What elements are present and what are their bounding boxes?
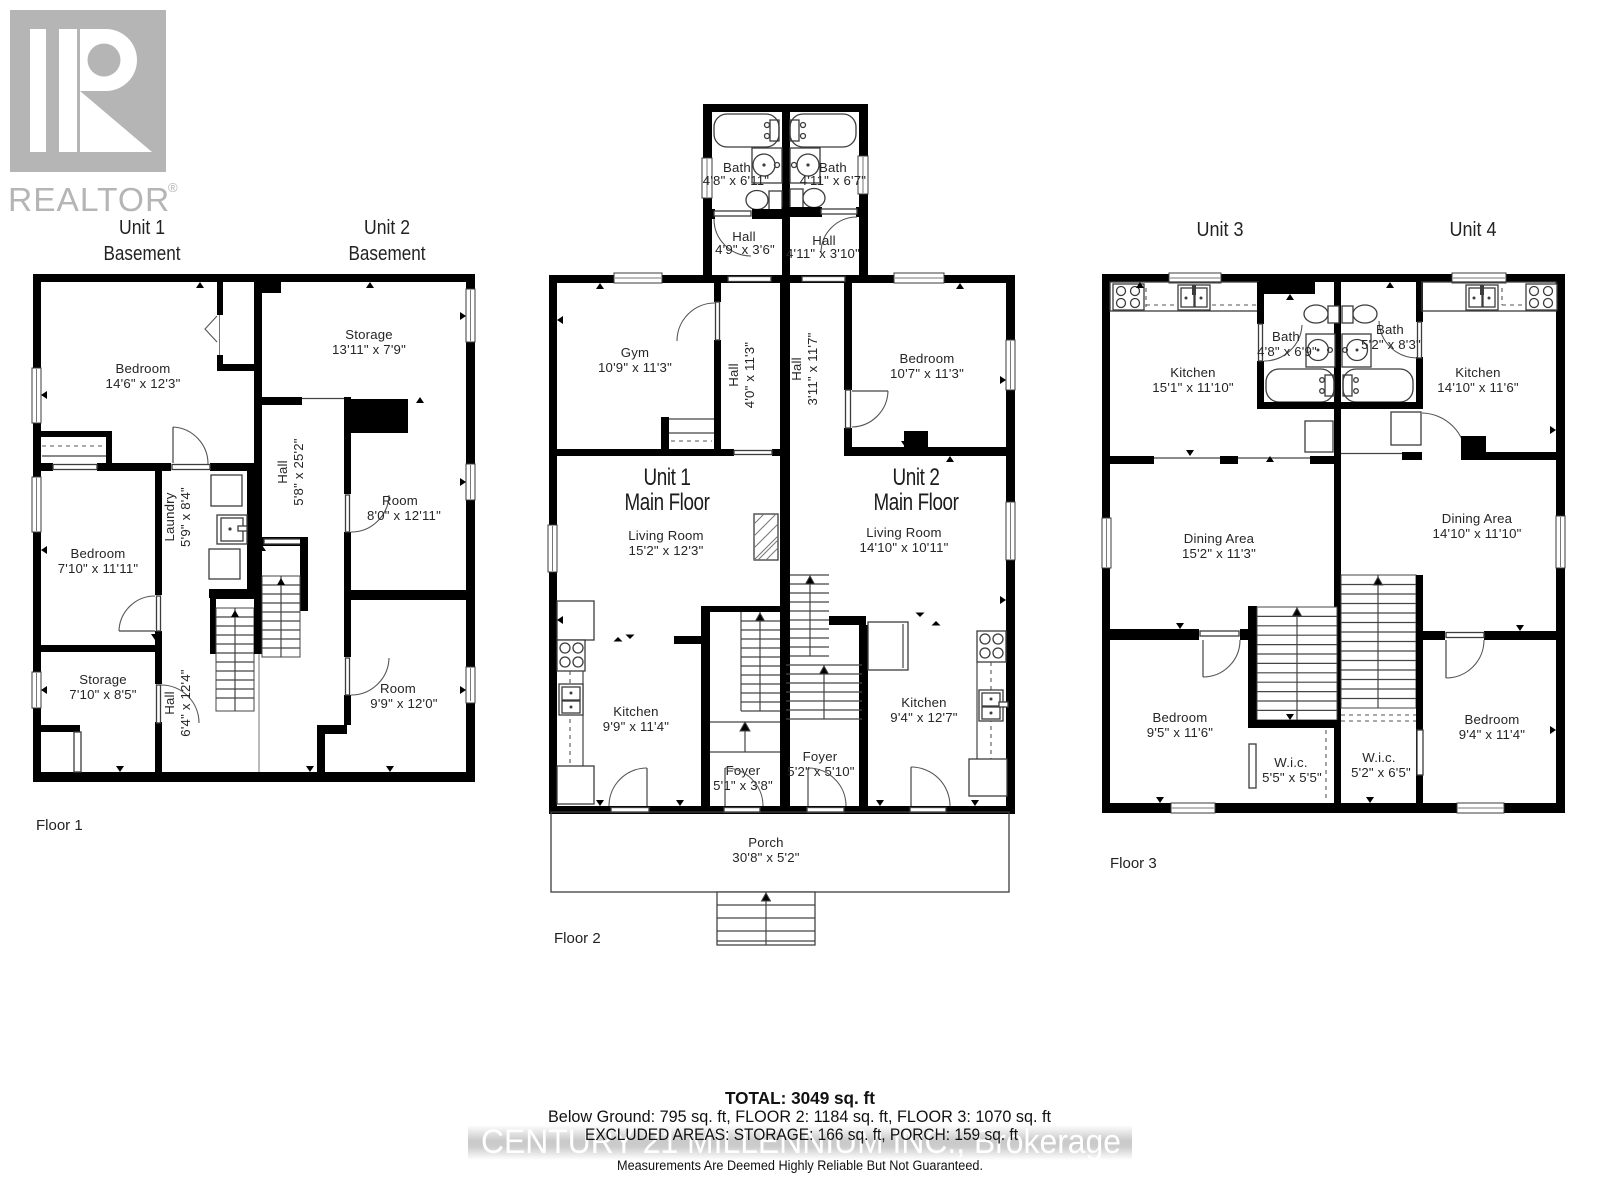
svg-text:Gym: Gym [621,345,649,360]
svg-text:Kitchen: Kitchen [901,695,946,710]
svg-text:Unit 4: Unit 4 [1450,219,1497,241]
svg-text:EXCLUDED AREAS: STORAGE: 166 s: EXCLUDED AREAS: STORAGE: 166 sq. ft, POR… [585,1126,1018,1144]
svg-text:Floor 2: Floor 2 [554,930,601,947]
svg-text:Main Floor: Main Floor [625,489,710,516]
svg-text:Dining Area: Dining Area [1442,511,1513,526]
svg-text:Room: Room [380,681,416,696]
svg-text:9'4" x 11'4": 9'4" x 11'4" [1459,727,1526,742]
svg-text:Floor 1: Floor 1 [36,817,83,834]
svg-text:Living Room: Living Room [628,528,704,543]
svg-text:Unit 1: Unit 1 [644,464,691,491]
svg-text:Bedroom: Bedroom [1465,712,1520,727]
svg-text:Bath: Bath [1376,322,1404,337]
svg-text:Kitchen: Kitchen [613,704,658,719]
svg-text:10'7" x 11'3": 10'7" x 11'3" [890,366,964,381]
svg-text:Bath: Bath [1272,329,1300,344]
svg-text:7'10" x 8'5": 7'10" x 8'5" [69,687,137,702]
svg-text:14'10" x 10'11": 14'10" x 10'11" [859,540,948,555]
svg-text:5'9" x 8'4": 5'9" x 8'4" [178,487,193,547]
svg-text:Foyer: Foyer [803,749,838,764]
svg-text:4'8" x 6'9": 4'8" x 6'9" [1257,344,1317,359]
svg-text:Floor 3: Floor 3 [1110,855,1157,872]
svg-text:7'10" x 11'11": 7'10" x 11'11" [58,561,139,576]
svg-text:4'11" x 3'10": 4'11" x 3'10" [786,246,860,261]
svg-text:REALTOR: REALTOR [8,182,170,219]
svg-text:Main Floor: Main Floor [874,489,959,516]
svg-text:Foyer: Foyer [726,763,761,778]
svg-text:Room: Room [382,493,418,508]
svg-text:6'4" x 12'4": 6'4" x 12'4" [178,669,193,737]
svg-text:Bedroom: Bedroom [900,351,955,366]
svg-text:W.i.c.: W.i.c. [1274,755,1307,770]
svg-text:TOTAL: 3049 sq. ft: TOTAL: 3049 sq. ft [725,1088,875,1108]
svg-text:Kitchen: Kitchen [1455,365,1500,380]
svg-text:14'10" x 11'10": 14'10" x 11'10" [1432,526,1521,541]
svg-text:Basement: Basement [104,243,181,265]
svg-text:Unit 2: Unit 2 [893,464,940,491]
svg-text:W.i.c.: W.i.c. [1362,750,1395,765]
svg-text:Bedroom: Bedroom [116,361,171,376]
svg-text:Storage: Storage [79,672,127,687]
svg-text:Living Room: Living Room [866,525,942,540]
svg-text:5'2" x 6'5": 5'2" x 6'5" [1351,765,1411,780]
svg-text:8'0" x 12'11": 8'0" x 12'11" [367,508,441,523]
svg-text:5'5" x 5'5": 5'5" x 5'5" [1262,770,1322,785]
svg-text:9'5" x 11'6": 9'5" x 11'6" [1147,725,1214,740]
svg-text:14'10" x 11'6": 14'10" x 11'6" [1437,380,1519,395]
svg-text:5'2" x 8'3": 5'2" x 8'3" [1361,337,1421,352]
svg-text:15'1" x 11'10": 15'1" x 11'10" [1152,380,1234,395]
svg-text:Kitchen: Kitchen [1170,365,1215,380]
svg-text:5'2" x 5'10": 5'2" x 5'10" [787,764,855,779]
svg-text:Hall: Hall [275,460,290,484]
svg-text:®: ® [168,180,178,195]
svg-text:3'11" x 11'7": 3'11" x 11'7" [805,332,820,405]
svg-text:9'4" x 12'7": 9'4" x 12'7" [890,710,958,725]
svg-text:Bedroom: Bedroom [71,546,126,561]
svg-text:5'1" x 3'8": 5'1" x 3'8" [713,778,773,793]
svg-text:Storage: Storage [345,327,393,342]
svg-text:Measurements Are Deemed Highly: Measurements Are Deemed Highly Reliable … [617,1158,983,1173]
svg-text:Hall: Hall [789,357,804,381]
svg-text:4'9" x 3'6": 4'9" x 3'6" [715,242,775,257]
svg-text:Laundry: Laundry [162,492,177,541]
svg-text:Dining Area: Dining Area [1184,531,1255,546]
svg-text:Hall: Hall [726,363,741,387]
svg-text:15'2" x 12'3": 15'2" x 12'3" [629,543,704,558]
svg-text:Hall: Hall [162,691,177,715]
svg-text:Unit 2: Unit 2 [364,217,410,239]
svg-text:13'11" x 7'9": 13'11" x 7'9" [332,342,406,357]
svg-text:Porch: Porch [748,835,783,850]
svg-text:10'9" x 11'3": 10'9" x 11'3" [598,360,672,375]
svg-text:9'9" x 12'0": 9'9" x 12'0" [370,696,438,711]
svg-text:14'6" x 12'3": 14'6" x 12'3" [106,376,181,391]
svg-text:Bedroom: Bedroom [1153,710,1208,725]
svg-text:Unit 1: Unit 1 [119,217,165,239]
svg-text:4'0" x 11'3": 4'0" x 11'3" [742,342,757,409]
svg-text:30'8" x 5'2": 30'8" x 5'2" [732,850,800,865]
svg-text:5'8" x 25'2": 5'8" x 25'2" [291,438,306,506]
svg-text:4'11" x 6'7": 4'11" x 6'7" [800,173,867,188]
svg-text:Basement: Basement [349,243,426,265]
svg-text:9'9" x 11'4": 9'9" x 11'4" [603,719,670,734]
svg-text:Unit 3: Unit 3 [1197,219,1244,241]
svg-text:15'2" x 11'3": 15'2" x 11'3" [1182,546,1256,561]
svg-text:4'8" x 6'11": 4'8" x 6'11" [703,173,770,188]
